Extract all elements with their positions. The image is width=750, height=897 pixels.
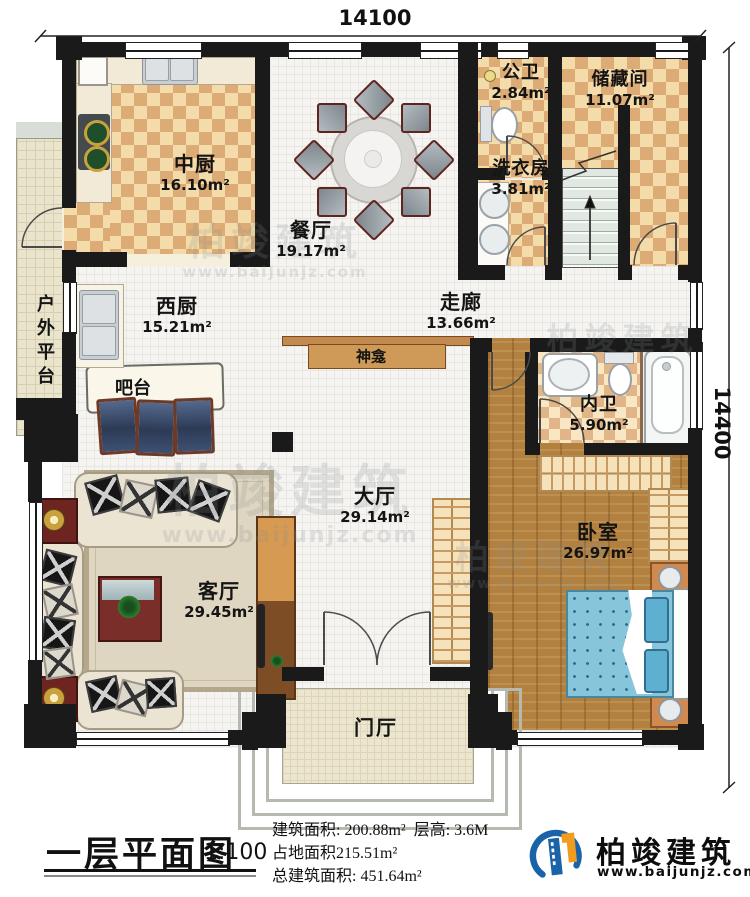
wall bbox=[618, 265, 632, 280]
stat-line-3: 总建筑面积: 451.64m² bbox=[272, 865, 488, 888]
room-area: 5.90m² bbox=[569, 416, 628, 434]
label-foyer: 门厅 bbox=[354, 712, 398, 741]
kitchen-sink-basin bbox=[170, 58, 194, 81]
wall bbox=[480, 42, 497, 57]
hall-closet bbox=[432, 498, 472, 664]
room-label-chucang: 储藏间 11.07m² bbox=[585, 69, 655, 109]
dining-chair bbox=[401, 103, 431, 133]
plan-scale: 1:100 bbox=[204, 840, 267, 865]
bed-pillow bbox=[644, 649, 669, 693]
sofa-pillow bbox=[42, 646, 76, 680]
wall bbox=[200, 42, 288, 57]
label-bar: 吧台 bbox=[115, 374, 151, 400]
staircase bbox=[562, 168, 620, 268]
room-name: 中厨 bbox=[160, 152, 230, 176]
window bbox=[63, 282, 77, 334]
room-label-dating: 大厅 29.14m² bbox=[340, 484, 410, 526]
wall bbox=[230, 252, 270, 267]
room-label-neiwei: 内卫 5.90m² bbox=[569, 394, 628, 434]
room-area: 11.07m² bbox=[585, 91, 655, 109]
nightstand-lamp bbox=[658, 566, 682, 590]
cabinet-plant bbox=[270, 654, 284, 668]
wall bbox=[458, 265, 505, 280]
wall bbox=[430, 667, 472, 681]
platform-step bbox=[16, 122, 62, 139]
laundry-basin bbox=[479, 224, 510, 255]
stat-built-area: 建筑面积: 200.88m² bbox=[272, 822, 406, 839]
dining-chair bbox=[317, 103, 347, 133]
room-label-canting: 餐厅 19.17m² bbox=[276, 218, 346, 260]
wall-corridor-south bbox=[530, 338, 702, 352]
brand-logo-icon bbox=[528, 824, 592, 890]
window bbox=[690, 282, 703, 330]
room-name: 内卫 bbox=[569, 394, 628, 416]
bed-pillow bbox=[644, 597, 669, 643]
bar-stool bbox=[96, 397, 140, 456]
sofa-pillow bbox=[145, 677, 177, 709]
dining-chair bbox=[317, 187, 347, 217]
fridge bbox=[78, 56, 108, 86]
label-outdoor-platform: 户外平台 bbox=[31, 294, 57, 390]
wall bbox=[470, 338, 492, 352]
westkitchen-sink-basin bbox=[82, 326, 116, 356]
room-label-woshi: 卧室 26.97m² bbox=[563, 520, 633, 562]
room-name: 洗衣房 bbox=[491, 158, 550, 180]
wall-stairs-divider bbox=[618, 105, 630, 265]
wall bbox=[62, 252, 127, 267]
room-name: 卧室 bbox=[563, 520, 633, 544]
window bbox=[76, 732, 230, 746]
wall bbox=[688, 428, 702, 730]
room-name: 大厅 bbox=[340, 484, 410, 508]
wall bbox=[678, 265, 702, 280]
bathtub-divider bbox=[640, 352, 643, 443]
ensuite-sink bbox=[548, 358, 590, 391]
wall bbox=[642, 730, 702, 745]
room-name: 储藏间 bbox=[585, 69, 655, 91]
wall bbox=[545, 265, 562, 280]
nightstand-lamp bbox=[658, 698, 682, 722]
porch-pillar bbox=[496, 712, 512, 750]
dimension-right: 14400 bbox=[710, 368, 734, 478]
wall-dining-wc bbox=[458, 42, 478, 267]
wall-bedroom-west bbox=[470, 352, 488, 730]
plant bbox=[116, 594, 142, 620]
stat-line-2: 占地面积215.51m² bbox=[272, 842, 488, 865]
brand-url: www.baijunjz.com bbox=[597, 864, 750, 880]
platform-wall-block bbox=[16, 398, 62, 420]
window bbox=[655, 42, 690, 59]
toilet-bowl bbox=[491, 107, 518, 143]
kitchen-sink-basin bbox=[145, 58, 169, 81]
sofa-pillow bbox=[119, 479, 159, 519]
ensuite-toilet-bowl bbox=[608, 363, 632, 396]
dimension-top: 14100 bbox=[320, 6, 430, 30]
stove-burner bbox=[84, 146, 110, 172]
dining-chair bbox=[401, 187, 431, 217]
title-underline bbox=[44, 869, 256, 872]
room-label-keting: 客厅 29.45m² bbox=[184, 579, 254, 621]
wall bbox=[62, 42, 76, 208]
wall bbox=[62, 730, 76, 745]
stat-floor-height: 层高: 3.6M bbox=[414, 822, 489, 839]
room-name: 西厨 bbox=[142, 294, 212, 318]
bar-stool bbox=[173, 397, 215, 454]
window bbox=[497, 42, 529, 59]
room-area: 16.10m² bbox=[160, 176, 230, 194]
plan-stats: 建筑面积: 200.88m² 层高: 3.6M 占地面积215.51m² 总建筑… bbox=[272, 819, 488, 889]
window bbox=[690, 342, 703, 430]
room-area: 29.14m² bbox=[340, 508, 410, 526]
living-tv bbox=[257, 604, 265, 668]
room-area: 19.17m² bbox=[276, 242, 346, 260]
corner-table-medallion bbox=[43, 509, 65, 531]
wall bbox=[584, 443, 688, 455]
window bbox=[125, 42, 202, 59]
westkitchen-sink-basin bbox=[82, 294, 116, 324]
title-underline-2 bbox=[44, 875, 256, 877]
wardrobe-right bbox=[648, 488, 690, 564]
wall bbox=[28, 660, 42, 710]
room-label-xichu: 西厨 15.21m² bbox=[142, 294, 212, 336]
room-area: 15.21m² bbox=[142, 318, 212, 336]
floor-plan-page: 柏竣建筑 www.baijunjz.com 柏竣建筑 www.baijunjz.… bbox=[0, 0, 750, 897]
room-area: 2.84m² bbox=[491, 84, 550, 102]
wall bbox=[688, 42, 702, 282]
room-name: 公卫 bbox=[491, 62, 550, 84]
room-area: 13.66m² bbox=[426, 314, 496, 332]
wall-corner-block bbox=[24, 414, 78, 462]
wall bbox=[62, 332, 76, 418]
room-label-xiyi: 洗衣房 3.81m² bbox=[491, 158, 550, 198]
column bbox=[272, 432, 293, 452]
bar-stool bbox=[135, 399, 177, 456]
wall-ensuite-west bbox=[525, 352, 538, 443]
window bbox=[517, 732, 644, 746]
room-area: 26.97m² bbox=[563, 544, 633, 562]
wall bbox=[527, 42, 655, 57]
wall bbox=[28, 460, 42, 502]
wall bbox=[525, 443, 540, 455]
wall-kitchen-dining bbox=[255, 42, 270, 267]
label-shrine: 神龛 bbox=[356, 346, 386, 367]
room-label-gongwei: 公卫 2.84m² bbox=[491, 62, 550, 102]
sofa-pillow bbox=[154, 476, 191, 513]
dining-table-center bbox=[364, 150, 382, 168]
porch-pillar bbox=[256, 694, 286, 748]
room-label-zoulang: 走廊 13.66m² bbox=[426, 290, 496, 332]
room-label-zhongchu: 中厨 16.10m² bbox=[160, 152, 230, 194]
stat-line-1: 建筑面积: 200.88m² 层高: 3.6M bbox=[272, 819, 488, 842]
wall bbox=[360, 42, 420, 57]
stove-burner bbox=[84, 120, 110, 146]
window bbox=[288, 42, 362, 59]
room-area: 3.81m² bbox=[491, 180, 550, 198]
bathtub-drain bbox=[662, 362, 671, 371]
room-name: 餐厅 bbox=[276, 218, 346, 242]
room-name: 客厅 bbox=[184, 579, 254, 603]
porch-pillar bbox=[242, 712, 258, 750]
wardrobe-top bbox=[538, 455, 672, 492]
window bbox=[29, 502, 43, 662]
room-name: 走廊 bbox=[426, 290, 496, 314]
room-area: 29.45m² bbox=[184, 603, 254, 621]
wall bbox=[282, 667, 324, 681]
